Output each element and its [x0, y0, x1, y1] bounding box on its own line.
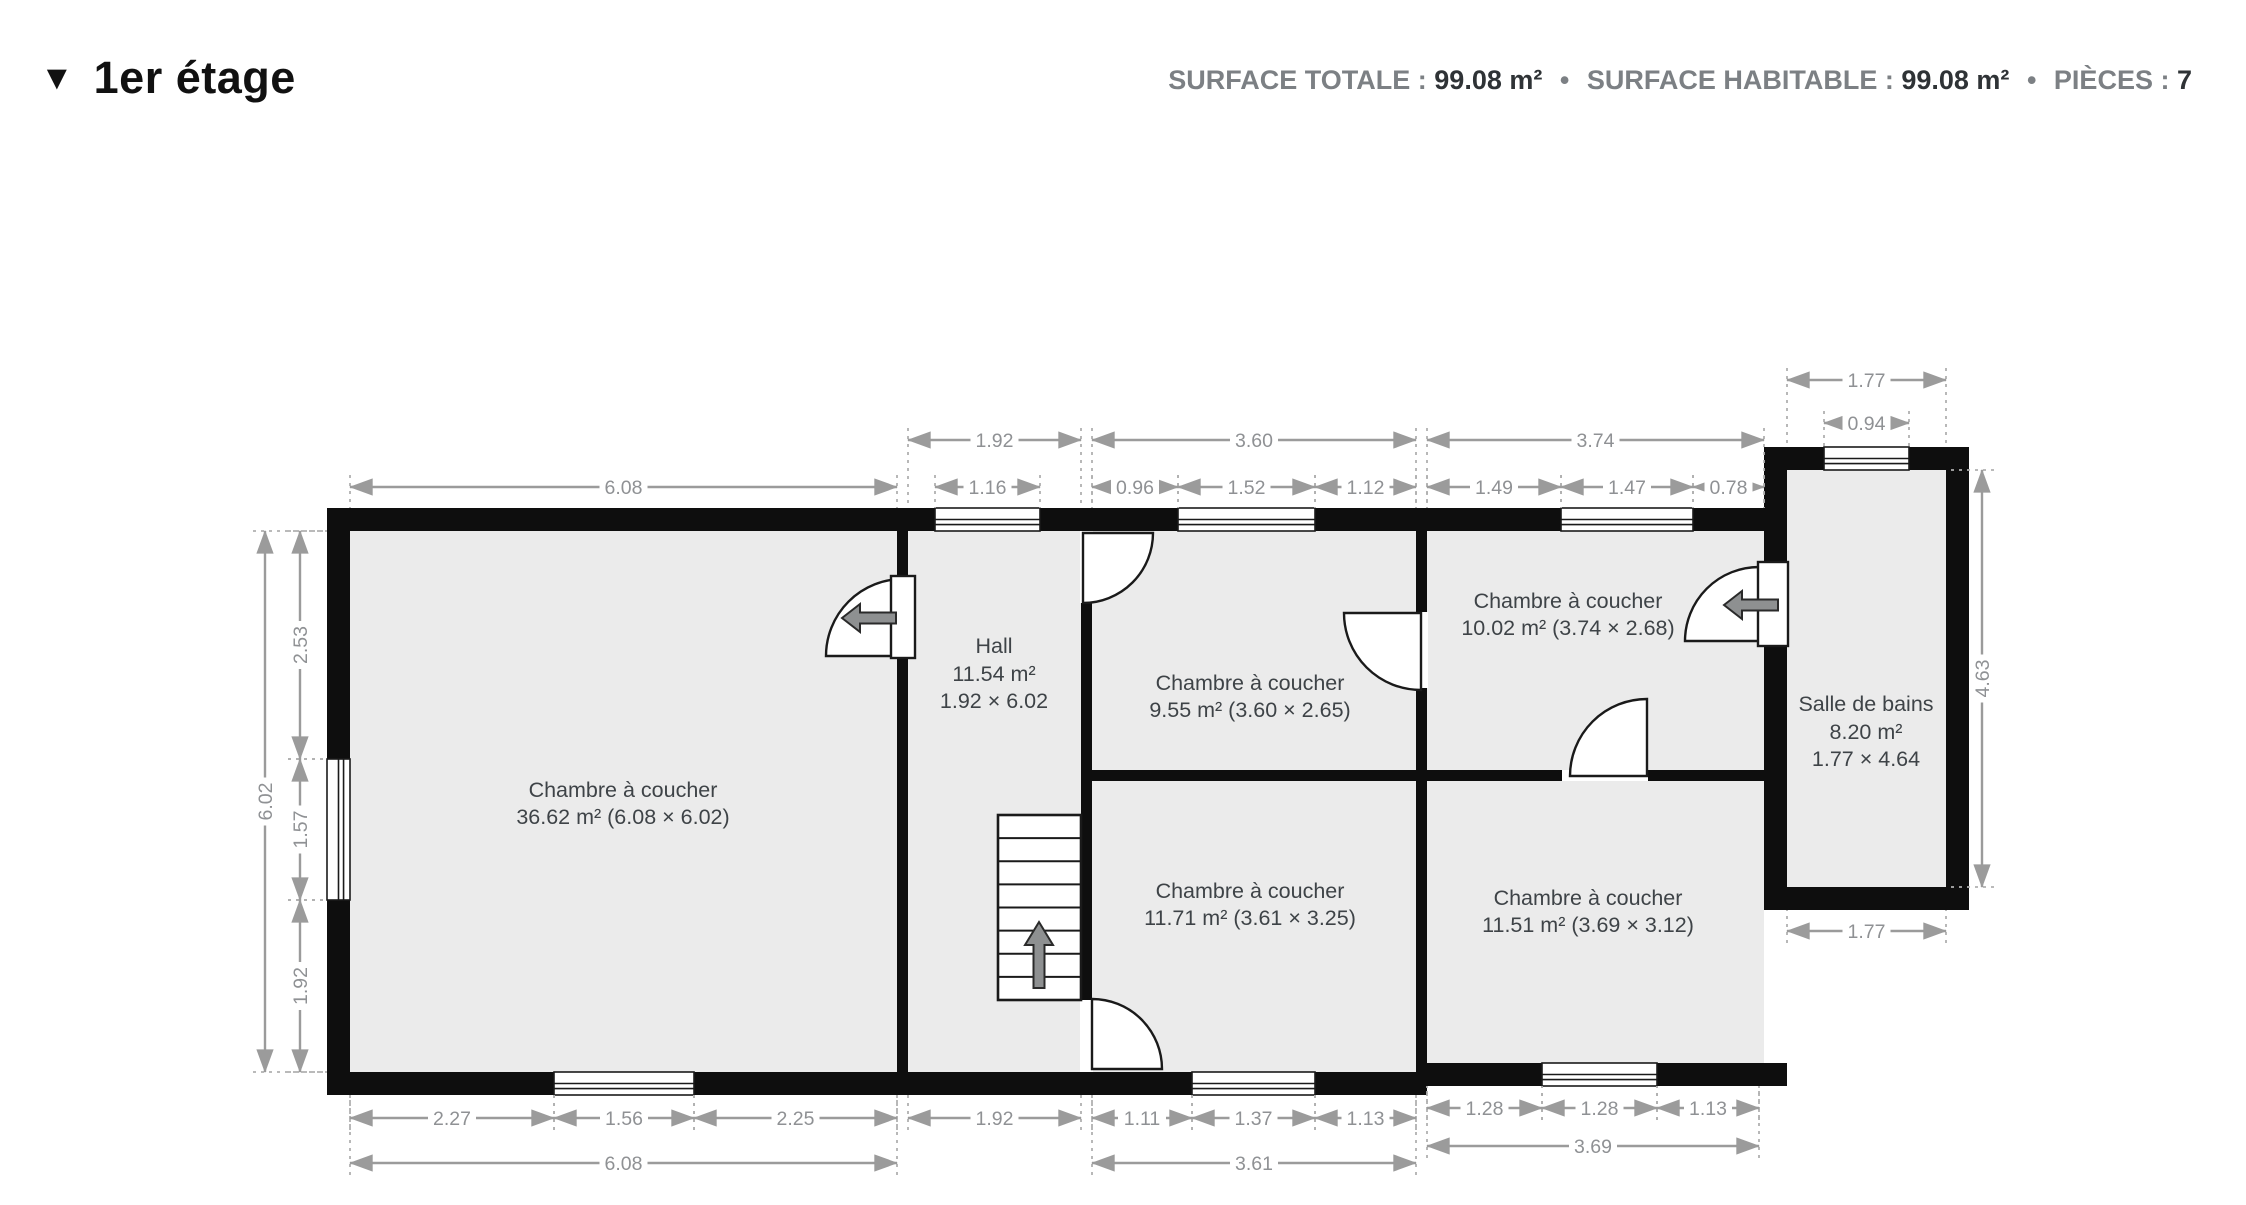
room-floor — [1787, 470, 1946, 887]
dimension-label: 1.37 — [1235, 1108, 1273, 1130]
floor-plan-svg: 1.923.603.741.770.946.081.160.961.521.12… — [0, 0, 2246, 1200]
dimension-label: 1.13 — [1347, 1108, 1385, 1130]
dimension-label: 3.61 — [1235, 1153, 1273, 1175]
room-measurements: 9.55 m² (3.60 × 2.65) — [1149, 698, 1350, 722]
wall — [1764, 447, 1787, 910]
wall — [1092, 770, 1416, 781]
dimension-label: 6.08 — [605, 1153, 643, 1175]
dimension-label: 1.77 — [1848, 921, 1886, 943]
room-measurements: 36.62 m² (6.08 × 6.02) — [516, 805, 729, 829]
dimension-label: 3.69 — [1574, 1136, 1612, 1158]
room-name: Chambre à coucher — [1156, 671, 1345, 695]
dimension-label: 1.57 — [290, 811, 312, 849]
dimension-label: 1.28 — [1466, 1098, 1504, 1120]
dimension-label: 1.28 — [1581, 1098, 1619, 1120]
room-measurements: 11.51 m² (3.69 × 3.12) — [1482, 913, 1694, 937]
dimension-label-group: 1.57 — [288, 806, 312, 854]
dimension-label: 1.92 — [976, 1108, 1014, 1130]
surface-stats: SURFACE TOTALE : 99.08 m² • SURFACE HABI… — [1168, 65, 2192, 96]
dimension-label: 1.13 — [1689, 1098, 1727, 1120]
dimension-label: 0.94 — [1848, 413, 1886, 435]
dimension-label: 0.96 — [1116, 477, 1154, 499]
room-name: Chambre à coucher — [1494, 886, 1683, 910]
dimension-label-group: 6.02 — [253, 778, 277, 826]
dimension-label-group: 2.53 — [288, 621, 312, 669]
wall — [1764, 887, 1969, 910]
stat-label-surface-totale: SURFACE TOTALE : — [1168, 65, 1427, 95]
stat-value-pieces: 7 — [2177, 65, 2192, 95]
dimension-label: 2.27 — [433, 1108, 471, 1130]
room-measurements: 1.92 × 6.02 — [940, 689, 1048, 713]
stat-value-surface-habitable: 99.08 m² — [1901, 65, 2009, 95]
room-measurements: 1.77 × 4.64 — [1812, 747, 1920, 771]
dimension-label: 6.02 — [255, 783, 277, 821]
room-name: Hall — [975, 634, 1012, 658]
floor-title: 1er étage — [94, 52, 296, 104]
dimension-label: 1.47 — [1608, 477, 1646, 499]
dimension-label-group: 1.92 — [288, 962, 312, 1010]
stat-value-surface-totale: 99.08 m² — [1434, 65, 1542, 95]
stat-label-surface-habitable: SURFACE HABITABLE : — [1587, 65, 1894, 95]
dimension-label: 1.11 — [1124, 1108, 1161, 1130]
room-measurements: 11.54 m² — [952, 662, 1035, 686]
room-name: Chambre à coucher — [1474, 589, 1663, 613]
dimension-label-group: 4.63 — [1970, 655, 1994, 703]
room-name: Chambre à coucher — [529, 778, 718, 802]
dimension-label: 1.77 — [1848, 370, 1886, 392]
dimension-label: 3.74 — [1577, 430, 1615, 452]
floor-plan: 1.923.603.741.770.946.081.160.961.521.12… — [0, 0, 2246, 1200]
dimension-label: 0.78 — [1710, 477, 1748, 499]
room-measurements: 10.02 m² (3.74 × 2.68) — [1461, 616, 1674, 640]
plan-header: ▼ 1er étage SURFACE TOTALE : 99.08 m² • … — [0, 0, 2246, 104]
stat-separator: • — [2017, 65, 2046, 95]
room-name: Salle de bains — [1798, 692, 1933, 716]
dimension-label: 1.92 — [290, 967, 312, 1005]
dimension-label: 6.08 — [605, 477, 643, 499]
room-measurements: 8.20 m² — [1830, 720, 1903, 744]
dimension-label: 1.16 — [969, 477, 1007, 499]
wall — [1081, 531, 1092, 1072]
room-measurements: 11.71 m² (3.61 × 3.25) — [1144, 906, 1356, 930]
dimension-label: 1.12 — [1347, 477, 1385, 499]
dimension-label: 2.25 — [777, 1108, 815, 1130]
room-name: Chambre à coucher — [1156, 879, 1345, 903]
dimension-label: 1.56 — [605, 1108, 643, 1130]
stat-label-pieces: PIÈCES : — [2054, 65, 2170, 95]
dimension-label: 1.92 — [976, 430, 1014, 452]
wall — [1946, 447, 1969, 910]
dimension-label: 2.53 — [290, 626, 312, 664]
dimension-label: 1.52 — [1228, 477, 1266, 499]
floor-section-toggle[interactable]: ▼ 1er étage — [40, 52, 296, 104]
collapse-triangle-icon[interactable]: ▼ — [40, 61, 74, 95]
dimension-label: 4.63 — [1972, 660, 1994, 698]
dimension-label: 1.49 — [1475, 477, 1513, 499]
stat-separator: • — [1550, 65, 1579, 95]
dimension-label: 3.60 — [1235, 430, 1273, 452]
wall — [327, 508, 1764, 531]
